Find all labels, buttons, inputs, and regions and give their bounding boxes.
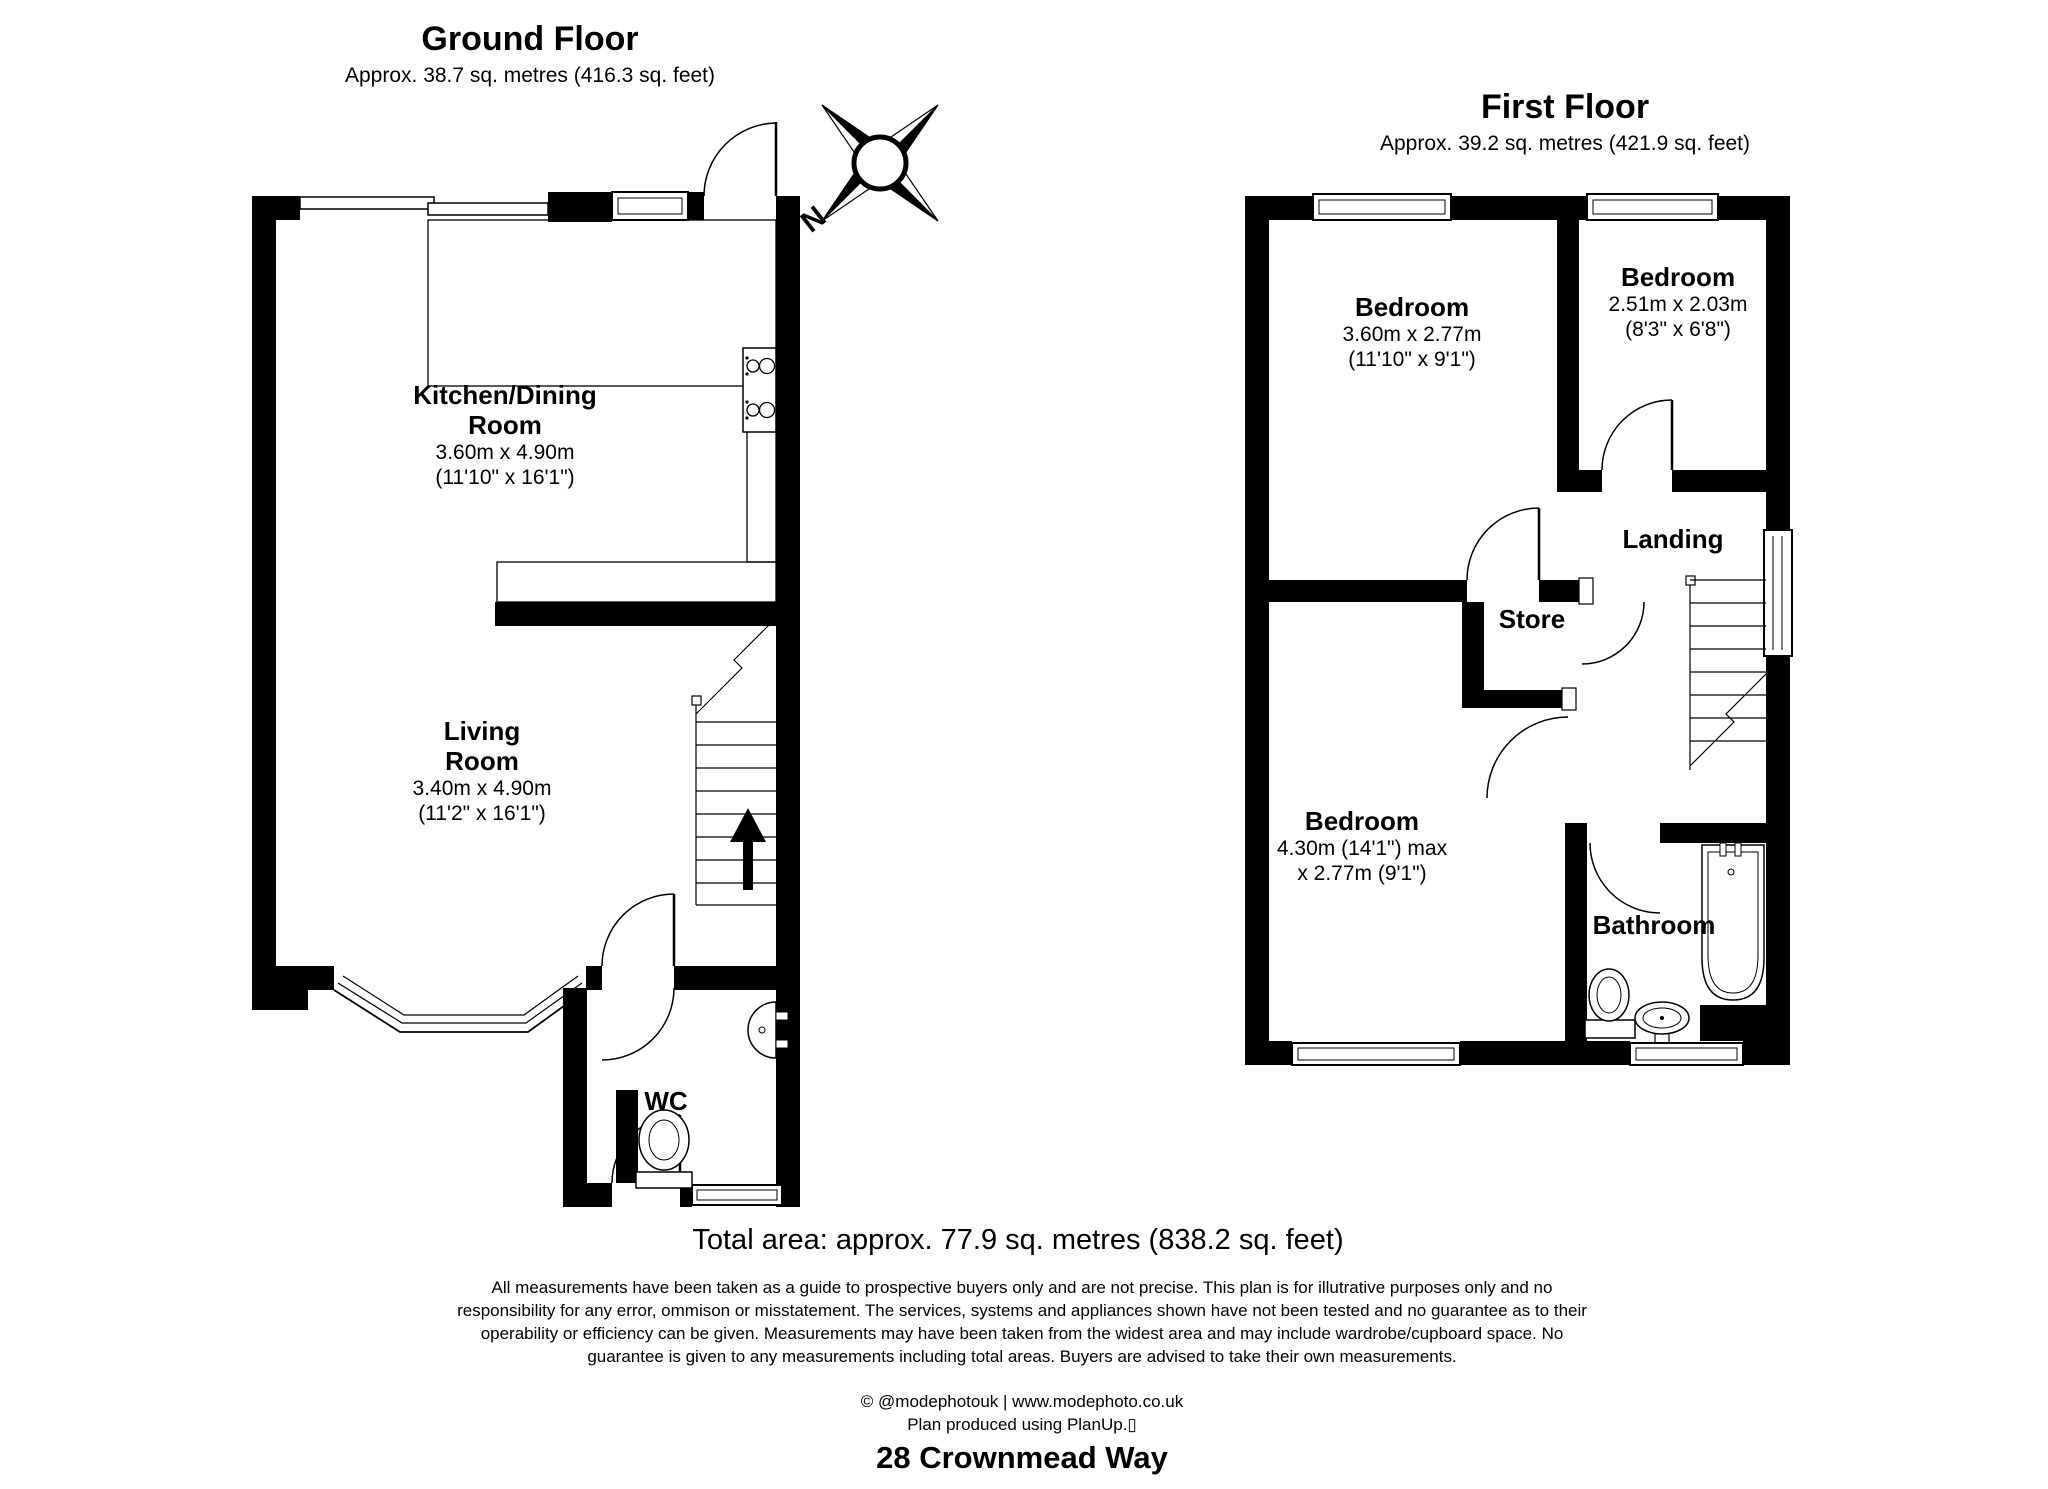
- address-title: 28 Crownmead Way: [876, 1440, 1168, 1476]
- credit-text: © @modephotouk | www.modephoto.co.uk: [861, 1390, 1183, 1413]
- living-hall-door: [602, 894, 674, 966]
- floorplan-drawing: [0, 0, 2048, 1489]
- compass-rose: [822, 105, 938, 221]
- bedroom3-door: [1487, 717, 1568, 798]
- total-area-text: Total area: approx. 77.9 sq. metres (838…: [692, 1224, 1343, 1257]
- bedroom2-door: [1602, 400, 1672, 470]
- room-name: Bedroom: [1609, 262, 1748, 292]
- toilet-fixture: [1585, 969, 1635, 1038]
- room-dims-line1: 4.30m (14'1") max: [1277, 836, 1447, 861]
- ground-floor-plan: [252, 122, 800, 1207]
- store-door: [1582, 602, 1644, 664]
- room-name: Room: [413, 410, 596, 440]
- bay-window: [334, 976, 586, 1032]
- room-dims-metric: 2.51m x 2.03m: [1609, 292, 1748, 317]
- basin-fixture: [1635, 1002, 1689, 1042]
- room-name: Kitchen/Dining: [413, 380, 596, 410]
- bathroom-door: [1590, 843, 1660, 913]
- ground-floor-stairs: [692, 614, 780, 905]
- first-floor-subtitle: Approx. 39.2 sq. metres (421.9 sq. feet): [1380, 132, 1750, 156]
- disclaimer-line: All measurements have been taken as a gu…: [457, 1276, 1587, 1299]
- ground-floor-subtitle: Approx. 38.7 sq. metres (416.3 sq. feet): [345, 64, 715, 88]
- room-dims-imperial: (11'10" x 9'1"): [1343, 347, 1482, 372]
- kitchen-window-left: [300, 197, 434, 209]
- disclaimer-text: All measurements have been taken as a gu…: [457, 1276, 1587, 1368]
- disclaimer-line: operability or efficiency can be given. …: [457, 1322, 1587, 1345]
- stairs-up-arrow: [730, 808, 766, 890]
- bedroom1-label: Bedroom 3.60m x 2.77m (11'10" x 9'1"): [1343, 292, 1482, 372]
- room-dims-imperial: (11'2" x 16'1"): [413, 801, 552, 826]
- room-name: Room: [413, 746, 552, 776]
- wc-label: WC: [644, 1086, 687, 1116]
- room-dims-metric: 3.60m x 2.77m: [1343, 322, 1482, 347]
- entry-door: [704, 122, 776, 196]
- store-label: Store: [1499, 604, 1565, 634]
- ground-floor-walls: [252, 192, 800, 1207]
- landing-window: [1764, 530, 1792, 656]
- room-name: Bedroom: [1343, 292, 1482, 322]
- bathroom-label: Bathroom: [1593, 910, 1716, 940]
- disclaimer-line: responsibility for any error, ommison or…: [457, 1299, 1587, 1322]
- kitchen-counter-bottom: [497, 562, 776, 602]
- ground-floor-title: Ground Floor: [421, 20, 638, 59]
- bedroom2-label: Bedroom 2.51m x 2.03m (8'3" x 6'8"): [1609, 262, 1748, 342]
- kitchen-worktop: [428, 220, 776, 386]
- room-dims-metric: 3.60m x 4.90m: [413, 440, 596, 465]
- room-name: Bedroom: [1277, 806, 1447, 836]
- first-floor-title: First Floor: [1481, 88, 1649, 127]
- room-dims-imperial: (11'10" x 16'1"): [413, 465, 596, 490]
- room-dims-imperial: (8'3" x 6'8"): [1609, 317, 1748, 342]
- bedroom1-door: [1467, 508, 1539, 580]
- first-floor-stairs: [1686, 576, 1770, 770]
- wc-door: [602, 988, 674, 1060]
- room-name: Living: [413, 716, 552, 746]
- room-dims-metric: 3.40m x 4.90m: [413, 776, 552, 801]
- stairs-break-line: [696, 614, 780, 714]
- kitchen-window-left2: [428, 203, 548, 215]
- room-dims-line2: x 2.77m (9'1"): [1277, 861, 1447, 886]
- hob-fixture: [743, 348, 776, 432]
- floorplan-page: Ground Floor Approx. 38.7 sq. metres (41…: [0, 0, 2048, 1489]
- living-room-label: Living Room 3.40m x 4.90m (11'2" x 16'1"…: [413, 716, 552, 826]
- software-credit-text: Plan produced using PlanUp.▯: [907, 1413, 1137, 1436]
- landing-label: Landing: [1622, 524, 1723, 554]
- ground-floor-windows: [300, 192, 782, 1205]
- bedroom3-label: Bedroom 4.30m (14'1") max x 2.77m (9'1"): [1277, 806, 1447, 886]
- kitchen-dining-room-label: Kitchen/Dining Room 3.60m x 4.90m (11'10…: [413, 380, 596, 490]
- disclaimer-line: guarantee is given to any measurements i…: [457, 1345, 1587, 1368]
- wc-toilet-fixture: [636, 1110, 692, 1188]
